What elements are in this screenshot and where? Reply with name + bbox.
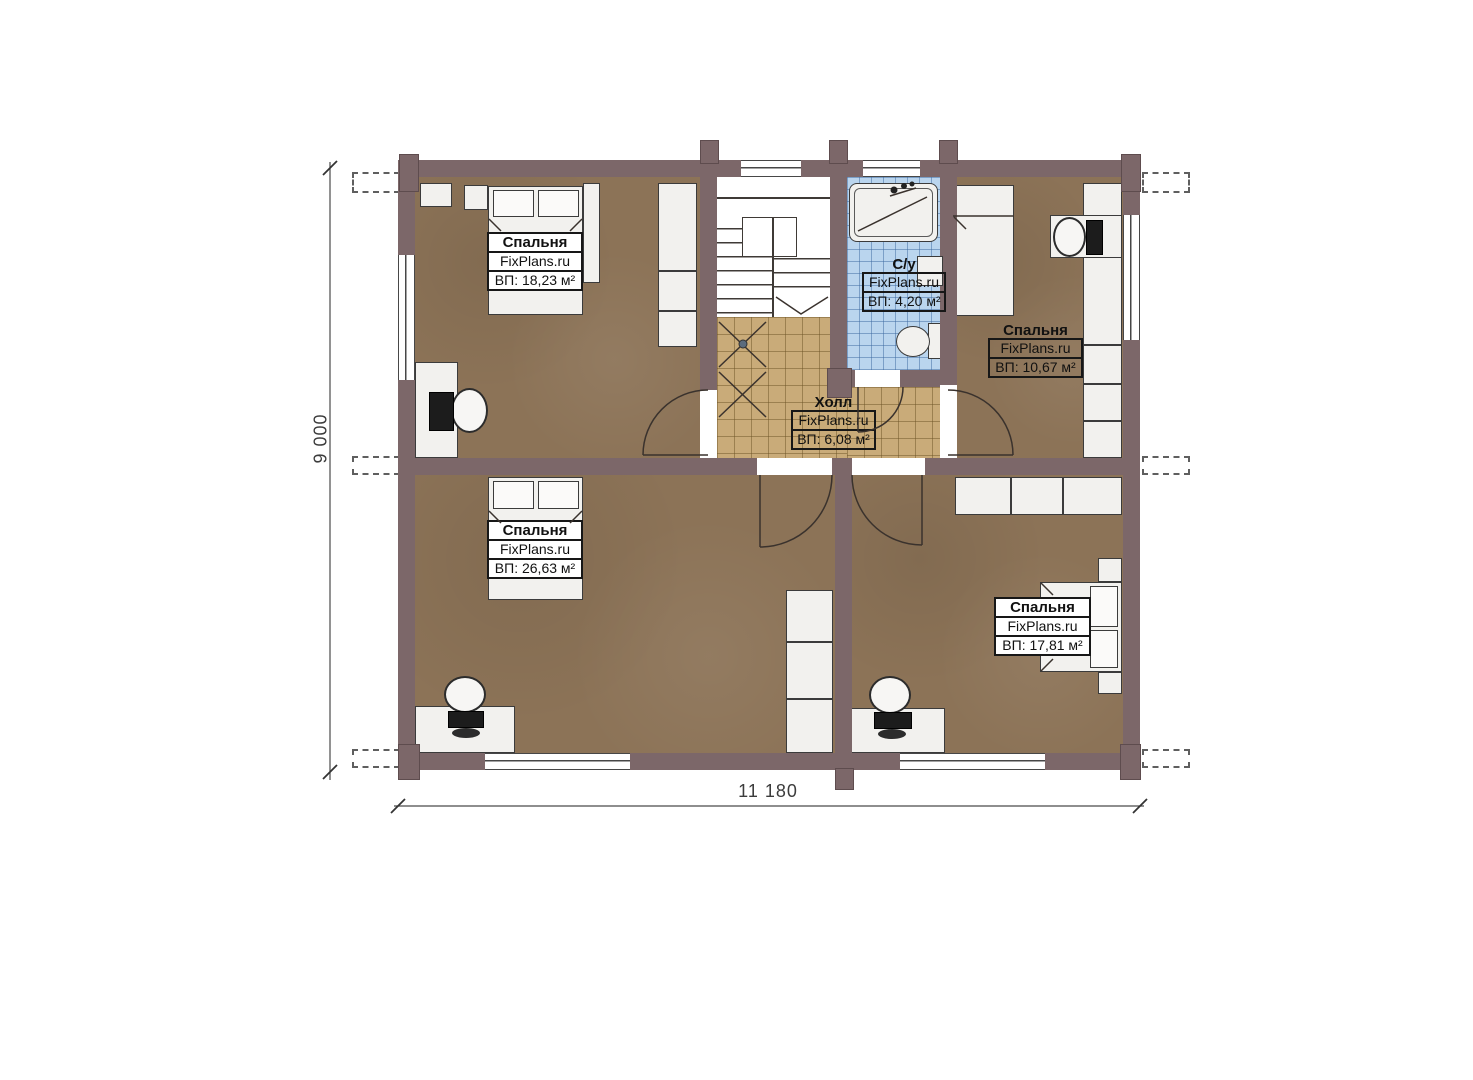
room-area: ВП: 10,67 м² (988, 357, 1083, 378)
wardrobe-shelf-line (658, 270, 697, 272)
wardrobe (658, 183, 697, 347)
dimension-width-label: 11 180 (718, 781, 818, 802)
room-label-hall: Холл FixPlans.ru ВП: 6,08 м² (791, 394, 876, 450)
log-post (829, 140, 848, 164)
monitor (1086, 220, 1103, 255)
cabinet-column (1083, 183, 1122, 345)
log-end-dashed (1142, 749, 1190, 768)
room-brand: FixPlans.ru (791, 410, 876, 431)
log-end-dashed (1142, 456, 1190, 475)
wardrobe-shelf-line (1010, 477, 1012, 515)
office-chair (869, 676, 911, 714)
chair-base (452, 728, 480, 738)
wardrobe-shelf-line (786, 641, 833, 643)
room-label-bedroom-top-left: Спальня FixPlans.ru ВП: 18,23 м² (487, 232, 583, 291)
pillow (1090, 630, 1118, 668)
office-chair (451, 388, 488, 433)
room-area: ВП: 26,63 м² (487, 558, 583, 579)
window (863, 160, 920, 177)
wall-left (398, 380, 415, 770)
wall-stairs-left (700, 177, 717, 390)
log-post (835, 768, 854, 790)
dresser (583, 183, 600, 283)
room-label-bedroom-top-right: Спальня FixPlans.ru ВП: 10,67 м² (988, 322, 1083, 378)
room-area: ВП: 6,08 м² (791, 429, 876, 450)
room-label-bedroom-bottom-left: Спальня FixPlans.ru ВП: 26,63 м² (487, 520, 583, 579)
monitor (429, 392, 454, 431)
log-post (939, 140, 958, 164)
log-end-dashed (352, 172, 400, 193)
log-post (399, 154, 419, 192)
room-name: Спальня (487, 232, 583, 253)
nightstand (1098, 672, 1122, 694)
pillow (538, 190, 579, 217)
door-opening (855, 370, 900, 387)
room-brand: FixPlans.ru (862, 272, 946, 293)
log-post (700, 140, 719, 164)
door-opening (940, 385, 957, 458)
room-area: ВП: 4,20 м² (862, 291, 946, 312)
office-chair (444, 676, 486, 713)
wall-bottom (630, 753, 900, 770)
log-end-dashed (352, 749, 400, 768)
wardrobe-shelf-line (1083, 383, 1122, 385)
room-brand: FixPlans.ru (988, 338, 1083, 359)
wall-bottom-divider (835, 475, 852, 770)
cabinet (420, 183, 452, 207)
stair-divider-line (772, 217, 774, 317)
wall-middle (832, 458, 852, 475)
log-post (1120, 744, 1141, 780)
room-label-bathroom: С/у FixPlans.ru ВП: 4,20 м² (862, 256, 946, 312)
stair-landing-line (717, 197, 830, 199)
door-opening (852, 458, 925, 475)
room-area: ВП: 17,81 м² (994, 635, 1091, 656)
nightstand (464, 185, 488, 210)
room-label-bedroom-bottom-right: Спальня FixPlans.ru ВП: 17,81 м² (994, 597, 1091, 656)
log-post (1121, 154, 1141, 192)
pillow (493, 481, 534, 509)
log-post (398, 744, 420, 780)
room-name: Спальня (487, 520, 583, 541)
pillow (493, 190, 534, 217)
window (398, 255, 415, 380)
wall-bath-left (830, 177, 847, 370)
monitor (874, 712, 912, 729)
wall-middle (398, 458, 757, 475)
wardrobe-shelf-line (658, 310, 697, 312)
wardrobe-shelf-line (1083, 420, 1122, 422)
monitor (448, 711, 484, 728)
window (485, 753, 630, 770)
door-opening (700, 390, 717, 458)
wall-middle (925, 458, 1140, 475)
single-bed (953, 185, 1014, 316)
window (1123, 215, 1140, 340)
room-area: ВП: 18,23 м² (487, 270, 583, 291)
wardrobe (1083, 345, 1122, 458)
toilet-bowl (896, 326, 930, 357)
office-chair (1053, 217, 1086, 257)
wall-right (1123, 340, 1140, 770)
floorplan-page: { "plan": { "brand": "FixPlans.ru", "roo… (0, 0, 1473, 1080)
bathtub-inner (854, 188, 933, 237)
chair-base (878, 729, 906, 739)
stair-treads-right (773, 258, 830, 298)
wardrobe-shelf-line (786, 698, 833, 700)
window (900, 753, 1045, 770)
door-opening (757, 458, 832, 475)
wardrobe-row (955, 477, 1122, 515)
pillow (1090, 586, 1118, 627)
wardrobe-shelf-line (1062, 477, 1064, 515)
log-end-dashed (352, 456, 400, 475)
wall-top (398, 160, 741, 177)
log-end-dashed (1142, 172, 1190, 193)
room-brand: FixPlans.ru (487, 539, 583, 560)
bathtub (849, 183, 938, 242)
pillow (538, 481, 579, 509)
room-brand: FixPlans.ru (994, 616, 1091, 637)
stairwell-opening (742, 217, 797, 257)
room-brand: FixPlans.ru (487, 251, 583, 272)
room-name: Спальня (994, 597, 1091, 618)
nightstand (1098, 558, 1122, 582)
wardrobe (786, 590, 833, 753)
window (741, 160, 801, 177)
dimension-height-label: 9 000 (311, 394, 332, 484)
